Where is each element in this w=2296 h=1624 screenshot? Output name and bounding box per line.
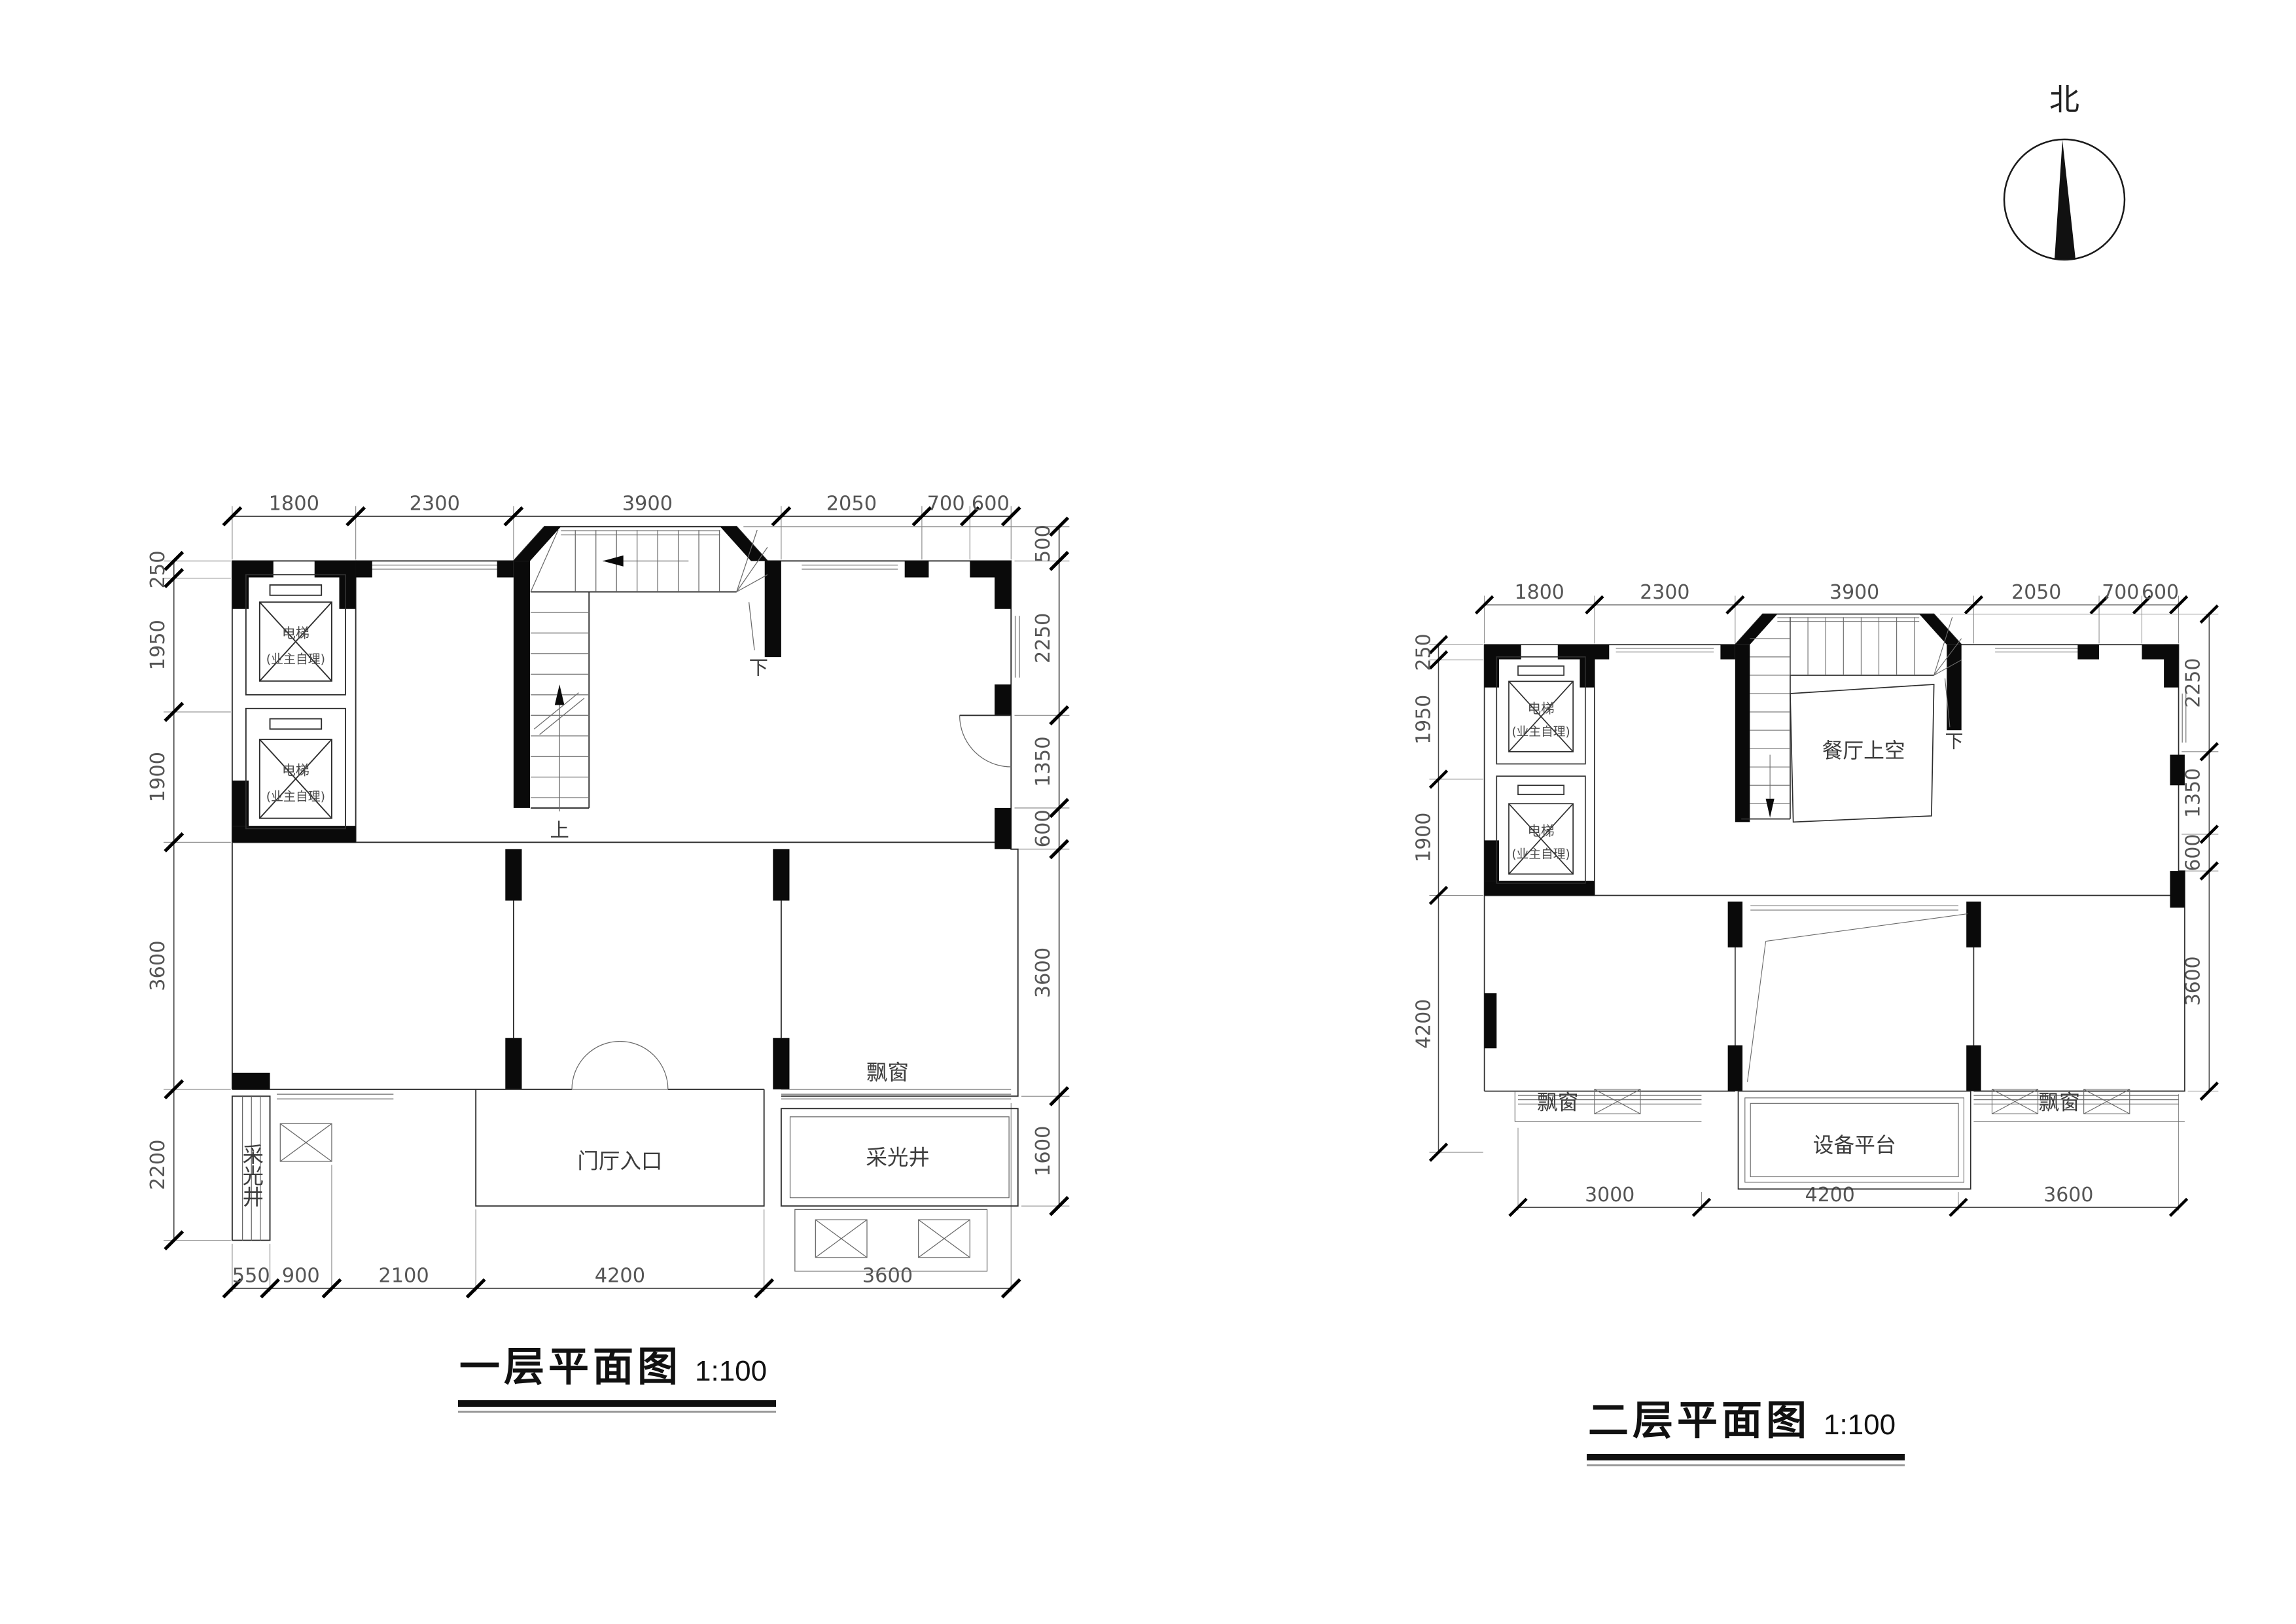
light-well-right-label: 采光井 — [866, 1145, 930, 1170]
plan1-title-scale: 1:100 — [695, 1355, 767, 1387]
bay-window-right-label: 飘窗 — [2039, 1091, 2081, 1115]
dim-text: 900 — [282, 1265, 320, 1288]
plan2-dims-left: 250 1950 1900 4200 — [1412, 633, 1483, 1161]
bay-window-left-label: 飘窗 — [1537, 1091, 1579, 1115]
dim-text: 600 — [2181, 834, 2204, 872]
elevator-label: 电梯 — [1527, 701, 1554, 716]
plan2-bottom-features: 飘窗 飘窗 设备平台 — [1515, 1089, 2185, 1189]
plan1-bottom-features: 门厅入口 采光井 飘窗 采光井 — [232, 1041, 1018, 1271]
dim-text: 600 — [2142, 581, 2179, 604]
plan2-dims-top: 1800 2300 3900 2050 700 600 — [1476, 581, 2187, 643]
dim-text: 3600 — [147, 940, 169, 991]
plan1-dims-left: 250 1950 1900 3600 2200 — [147, 550, 231, 1249]
dim-text: 1800 — [269, 493, 319, 516]
elevator-label: 电梯 — [282, 763, 309, 779]
dim-text: 700 — [927, 493, 965, 516]
dim-text: 1350 — [1032, 736, 1055, 786]
plan1-staircase: 上 下 — [514, 527, 781, 841]
dim-text: 700 — [2102, 581, 2139, 604]
plan1-title-text: 一层平面图 — [459, 1345, 682, 1390]
stair-down-label: 下 — [1945, 730, 1963, 752]
plan1-walls — [232, 527, 1019, 1099]
dim-text: 2250 — [1032, 613, 1055, 663]
entry-label: 门厅入口 — [577, 1148, 662, 1173]
elevator-note: (业主自理) — [1511, 847, 1570, 861]
stair-up-label: 上 — [550, 819, 569, 841]
dim-text: 2200 — [147, 1140, 169, 1190]
title-underline — [458, 1411, 776, 1413]
plan1-drawing: 1800 2300 3900 2050 700 600 250 1950 190… — [98, 458, 1073, 1302]
floor-plan-sheet: 1800 2300 3900 2050 700 600 250 1950 190… — [0, 0, 2296, 1624]
dim-text: 1900 — [147, 752, 169, 802]
title-underline — [1587, 1464, 1905, 1466]
dim-text: 250 — [147, 550, 169, 588]
plan2-title-text: 二层平面图 — [1588, 1398, 1810, 1443]
dim-text: 2250 — [2181, 658, 2204, 708]
dim-text: 600 — [1032, 809, 1055, 847]
dim-text: 3900 — [622, 493, 673, 516]
plan2-walls — [1485, 614, 2186, 1091]
dining-void-label: 餐厅上空 — [1822, 739, 1905, 763]
north-needle-icon — [2055, 140, 2075, 259]
dim-text: 2050 — [826, 493, 877, 516]
light-well-left-label: 采光井 — [239, 1143, 264, 1207]
dim-text: 1950 — [147, 620, 169, 670]
dim-text: 4200 — [1805, 1184, 1855, 1207]
dim-text: 2100 — [378, 1265, 429, 1288]
plan1-dims-right: 500 2250 1350 600 3600 1600 — [743, 518, 1069, 1215]
plan1-elevators: 电梯 (业主自理) 电梯 (业主自理) — [246, 574, 345, 828]
dim-text: 4200 — [595, 1265, 645, 1288]
dim-text: 1600 — [1032, 1126, 1055, 1176]
elevator-note: (业主自理) — [1511, 726, 1570, 739]
dim-text: 500 — [1032, 525, 1055, 563]
dim-text: 1350 — [2181, 768, 2204, 818]
plan2-drawing: 1800 2300 3900 2050 700 600 250 1950 190… — [1377, 553, 2221, 1238]
dim-text: 2300 — [1640, 581, 1689, 604]
dim-text: 2300 — [410, 493, 460, 516]
plan1-dims-bottom: 550 900 2100 4200 3600 — [223, 1103, 1020, 1297]
dim-text: 3600 — [1032, 947, 1055, 998]
dim-text: 2050 — [2011, 581, 2061, 604]
dim-text: 550 — [232, 1265, 270, 1288]
elevator-label: 电梯 — [1527, 823, 1554, 839]
dim-text: 1900 — [1412, 813, 1435, 862]
plan2-elevators: 电梯 (业主自理) 电梯 (业主自理) — [1496, 657, 1585, 883]
dim-text: 3600 — [2043, 1184, 2093, 1207]
equipment-platform-label: 设备平台 — [1813, 1134, 1896, 1157]
dim-text: 3000 — [1585, 1184, 1634, 1207]
dim-text: 3900 — [1829, 581, 1879, 604]
plan1-title: 一层平面图1:100 — [458, 1333, 776, 1407]
elevator-note: (业主自理) — [266, 652, 325, 667]
plan2-staircase: 餐厅上空 下 — [1735, 614, 1964, 822]
dim-text: 3600 — [862, 1265, 913, 1288]
dim-text: 4200 — [1412, 999, 1435, 1049]
dim-text: 600 — [972, 493, 1010, 516]
elevator-label: 电梯 — [282, 626, 309, 641]
bay-window-label: 飘窗 — [866, 1060, 909, 1085]
dim-text: 1950 — [1412, 695, 1435, 745]
north-label: 北 — [2049, 82, 2079, 117]
dim-text: 250 — [1412, 633, 1435, 671]
plan2-title-scale: 1:100 — [1824, 1409, 1896, 1441]
elevator-note: (业主自理) — [266, 789, 325, 803]
north-arrow: 北 — [1989, 79, 2140, 281]
stair-down-label: 下 — [749, 656, 768, 679]
dim-text: 1800 — [1515, 581, 1564, 604]
plan2-title: 二层平面图1:100 — [1587, 1387, 1905, 1460]
